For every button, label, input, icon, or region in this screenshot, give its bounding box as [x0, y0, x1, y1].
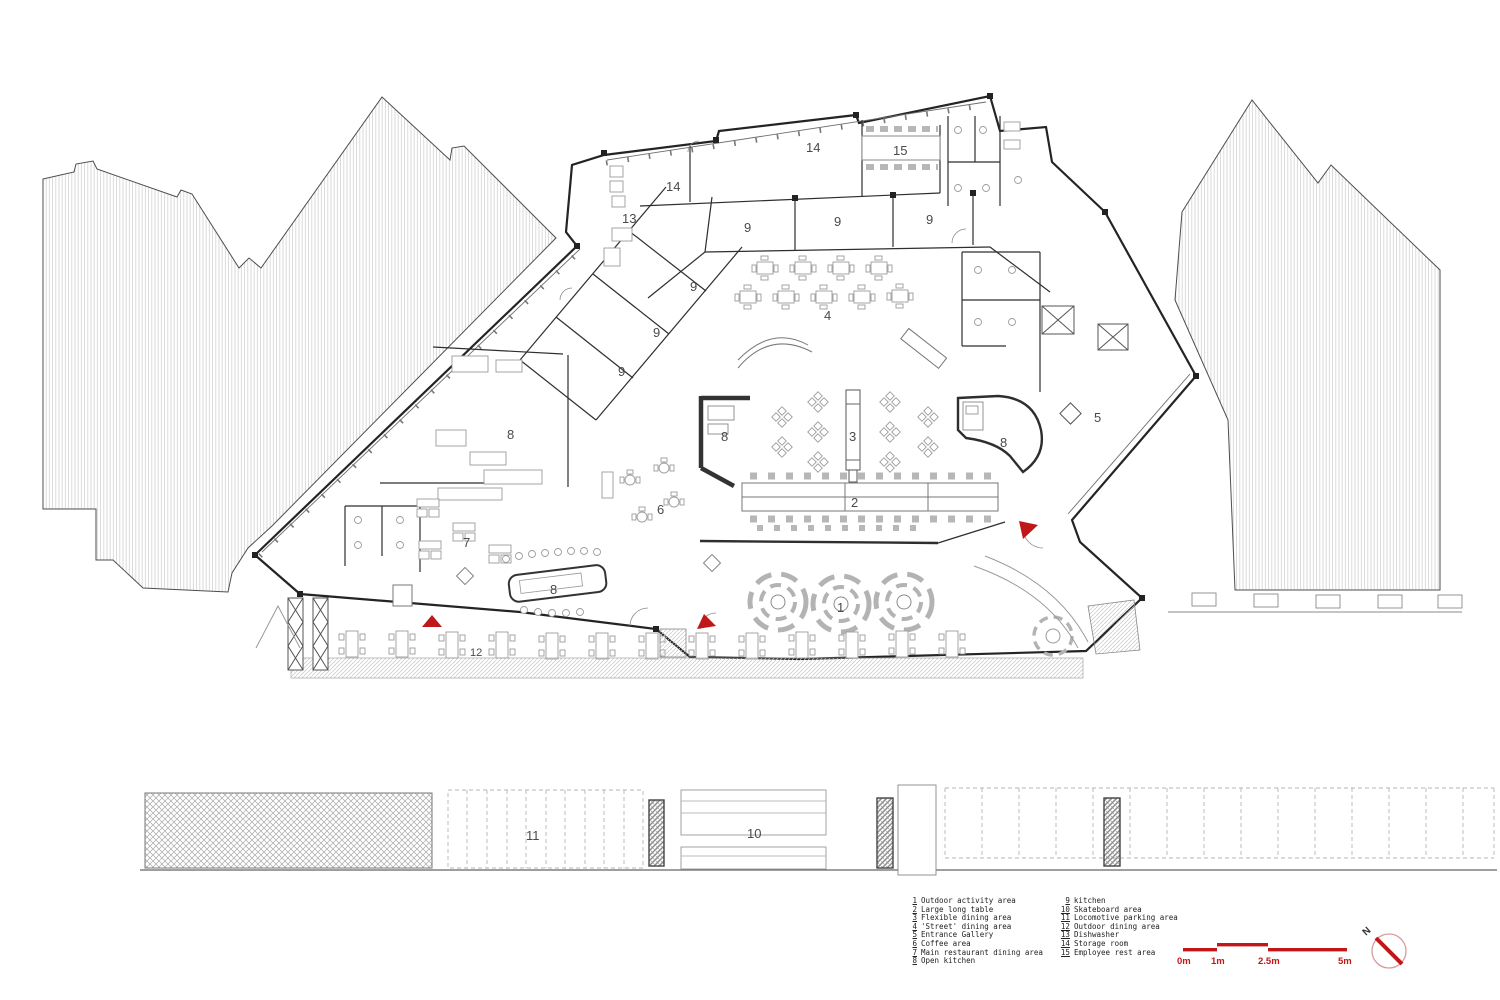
- room-label: 14: [806, 140, 820, 155]
- scale-label: 1m: [1211, 956, 1225, 967]
- right-parking-row: [1168, 593, 1462, 612]
- pillar: [877, 798, 893, 868]
- room-label: 4: [824, 308, 831, 323]
- scale-label: 5m: [1338, 956, 1352, 967]
- room-label: 7: [463, 535, 470, 550]
- room-label: 10: [747, 826, 761, 841]
- room-label: 8: [550, 582, 557, 597]
- entrance-arrow: [422, 615, 442, 627]
- room-label: 15: [893, 143, 907, 158]
- paved-wedge: [1088, 600, 1140, 654]
- room-label: 8: [507, 427, 514, 442]
- floor-plan-drawing: 14 15 14 13 9 9 9 9 9 9 8 7 8 8 6 3 2 1 …: [0, 0, 1500, 1000]
- room-label: 9: [653, 325, 660, 340]
- north-label: N: [1361, 925, 1374, 938]
- legend: 1Outdoor activity area 2Large long table…: [908, 897, 1178, 966]
- room-label: 9: [618, 364, 625, 379]
- room-label: 6: [657, 502, 664, 517]
- legend-column-1: 1Outdoor activity area 2Large long table…: [908, 897, 1043, 966]
- room-label: 9: [834, 214, 841, 229]
- room-label: 12: [470, 647, 482, 659]
- floor-plan-page: 14 15 14 13 9 9 9 9 9 9 8 7 8 8 6 3 2 1 …: [0, 0, 1500, 1000]
- room-label: 14: [666, 179, 680, 194]
- paved-block: [145, 793, 432, 868]
- entrance-mat: [660, 629, 686, 657]
- ramp-block: [898, 785, 936, 875]
- scale-bar: 0m 1m 2.5m 5m: [1177, 943, 1352, 967]
- room-label: 11: [526, 828, 540, 843]
- legend-item: 15Employee rest area: [1061, 949, 1178, 958]
- legend-column-2: 9kitchen 10Skateboard area 11Locomotive …: [1061, 897, 1178, 966]
- room-label: 9: [926, 212, 933, 227]
- north-compass: N: [1361, 925, 1406, 968]
- room-label: 8: [1000, 435, 1007, 450]
- locomotive-parking: [448, 790, 643, 868]
- legend-item: 8Open kitchen: [908, 957, 1043, 966]
- parking-spaces-right: [945, 788, 1494, 858]
- room-label: 9: [690, 279, 697, 294]
- scale-label: 0m: [1177, 956, 1191, 967]
- room-label: 1: [837, 600, 844, 615]
- terrace-walkway: [291, 658, 1083, 678]
- room-label: 2: [851, 495, 858, 510]
- room-label: 8: [721, 429, 728, 444]
- trestle-towers: [256, 598, 328, 670]
- room-label: 3: [849, 429, 856, 444]
- room-label: 9: [744, 220, 751, 235]
- pillar: [649, 800, 664, 866]
- room-label: 13: [622, 211, 636, 226]
- pillar: [1104, 798, 1120, 866]
- scale-label: 2.5m: [1258, 956, 1280, 967]
- room-label: 5: [1094, 410, 1101, 425]
- context-right: [1175, 100, 1440, 590]
- bottom-strip: [140, 785, 1497, 875]
